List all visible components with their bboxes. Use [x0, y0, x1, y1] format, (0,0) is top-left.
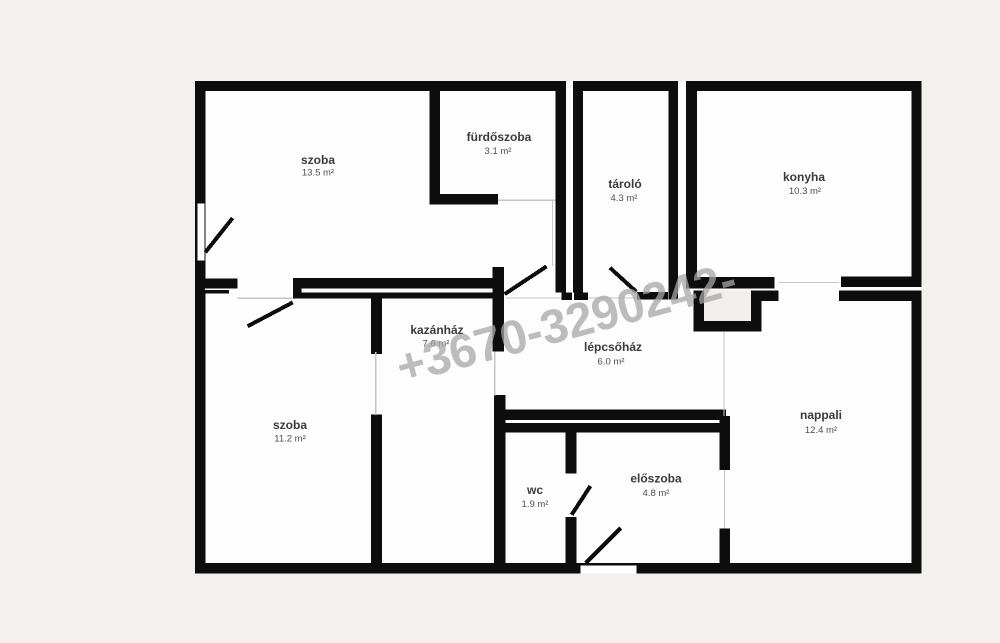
- svg-text:nappali: nappali: [800, 408, 842, 422]
- svg-text:konyha: konyha: [783, 170, 825, 184]
- svg-text:fürdőszoba: fürdőszoba: [467, 130, 532, 144]
- svg-text:előszoba: előszoba: [630, 472, 682, 486]
- svg-text:13.5 m²: 13.5 m²: [302, 168, 334, 179]
- svg-text:4.8 m²: 4.8 m²: [643, 488, 670, 499]
- svg-text:6.0 m²: 6.0 m²: [598, 357, 625, 368]
- svg-text:10.3 m²: 10.3 m²: [789, 186, 821, 197]
- svg-text:szoba: szoba: [273, 418, 307, 432]
- svg-text:11.2 m²: 11.2 m²: [274, 434, 306, 445]
- svg-text:3.1 m²: 3.1 m²: [485, 146, 512, 157]
- svg-text:4.3 m²: 4.3 m²: [611, 193, 638, 204]
- svg-text:12.4 m²: 12.4 m²: [805, 425, 837, 436]
- svg-text:1.9 m²: 1.9 m²: [522, 499, 549, 510]
- svg-text:wc: wc: [526, 483, 543, 497]
- svg-text:tároló: tároló: [608, 177, 641, 191]
- svg-text:szoba: szoba: [301, 153, 335, 167]
